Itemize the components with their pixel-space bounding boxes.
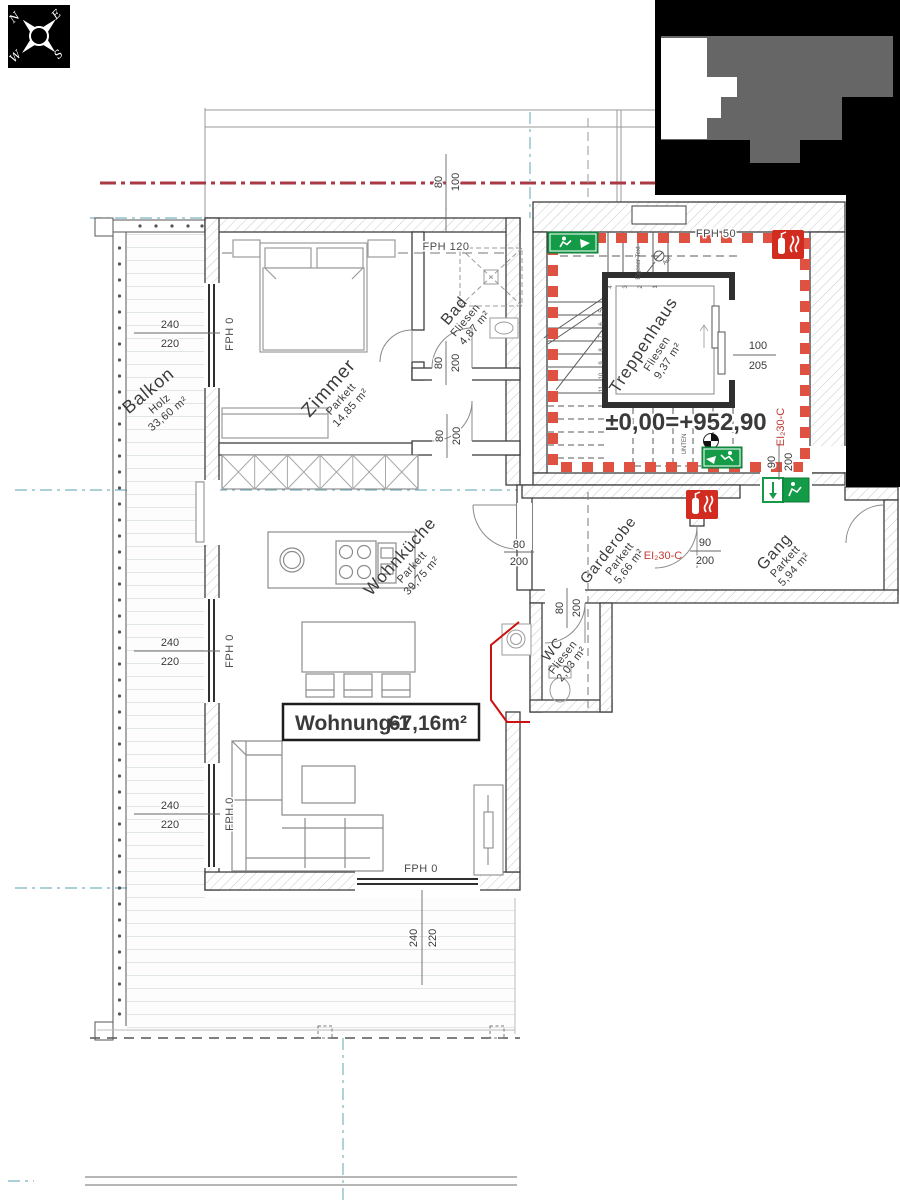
elevation-label: ±0,00=+952,90 <box>605 409 766 436</box>
exit-door-sign <box>763 478 809 502</box>
stair-number: 10 <box>599 372 605 379</box>
apartment-area: 67,16m² <box>389 712 467 735</box>
bottom-frame-lines <box>85 1177 517 1185</box>
fire-extinguisher-sign-garderobe <box>686 490 718 519</box>
dim-value: 80 <box>554 602 566 614</box>
balcony-door-leaf <box>196 482 204 542</box>
dim-value: 80 <box>513 539 525 551</box>
dim-value: 200 <box>510 556 528 568</box>
dim-elevator-door: 100 205 <box>749 340 767 372</box>
dim-value: 220 <box>427 929 439 947</box>
dim-value: 100 <box>749 340 767 352</box>
dim-parapet-top: 80 100 <box>433 154 462 210</box>
dim-value: 220 <box>161 656 179 668</box>
floorplan-page: 240 220 240 220 240 220 240 220 80 100 8… <box>0 0 900 1200</box>
fph0-label-3: FPH 0 <box>224 797 236 831</box>
exit-sign-bottom <box>702 447 742 468</box>
eigener-text-label: Eigener Text <box>636 246 642 280</box>
dim-value: 90 <box>699 537 711 549</box>
fph0-label-2: FPH 0 <box>224 634 236 668</box>
fph120-label: FPH 120 <box>423 241 470 253</box>
dim-value: 200 <box>783 453 795 471</box>
fph0-label-1: FPH 0 <box>224 317 236 351</box>
compass-rose: N E S W <box>6 3 72 69</box>
dim-value: 200 <box>450 354 462 372</box>
dim-value: 100 <box>450 173 462 191</box>
dim-value: 205 <box>749 360 767 372</box>
room-label-gang: Gang Parkett 5,94 m² <box>754 530 813 589</box>
sofa <box>232 741 383 871</box>
dim-value: 240 <box>161 800 179 812</box>
dining-set <box>302 622 415 697</box>
dim-value: 240 <box>408 929 420 947</box>
fire-extinguisher-sign-top <box>772 230 804 259</box>
dim-value: 200 <box>696 555 714 567</box>
dim-value: 200 <box>451 427 463 445</box>
fire-rating-label-horizontal: EI₂30-C <box>644 550 683 562</box>
dim-value: 220 <box>161 338 179 350</box>
dim-value: 220 <box>161 819 179 831</box>
room-label-bad: Bad Fliesen 4,87 m² <box>435 290 493 348</box>
dim-value: 240 <box>161 319 179 331</box>
bad-washbasin <box>490 318 518 338</box>
dim-value: 200 <box>571 599 583 617</box>
exit-sign-top <box>548 232 598 253</box>
dim-value: 80 <box>433 176 445 188</box>
fph0-label-4: FPH 0 <box>404 863 438 875</box>
dim-value: 240 <box>161 637 179 649</box>
tv-board <box>474 785 503 875</box>
fire-rating-label-vertical: EI₂30-C <box>775 408 787 447</box>
unten-label: UNTEN <box>682 434 688 455</box>
coffee-table <box>302 766 355 803</box>
floorplan-drawing: 240 220 240 220 240 220 240 220 80 100 8… <box>0 0 900 1200</box>
wardrobe-row <box>222 455 418 489</box>
dim-value: 80 <box>434 430 446 442</box>
vent-box <box>632 206 686 224</box>
dim-value: 80 <box>433 357 445 369</box>
fph50-label: FPH 50 <box>696 228 736 240</box>
dim-value: 90 <box>766 456 778 468</box>
apartment-title-box: Wohnung-1 67,16m² <box>283 704 479 740</box>
